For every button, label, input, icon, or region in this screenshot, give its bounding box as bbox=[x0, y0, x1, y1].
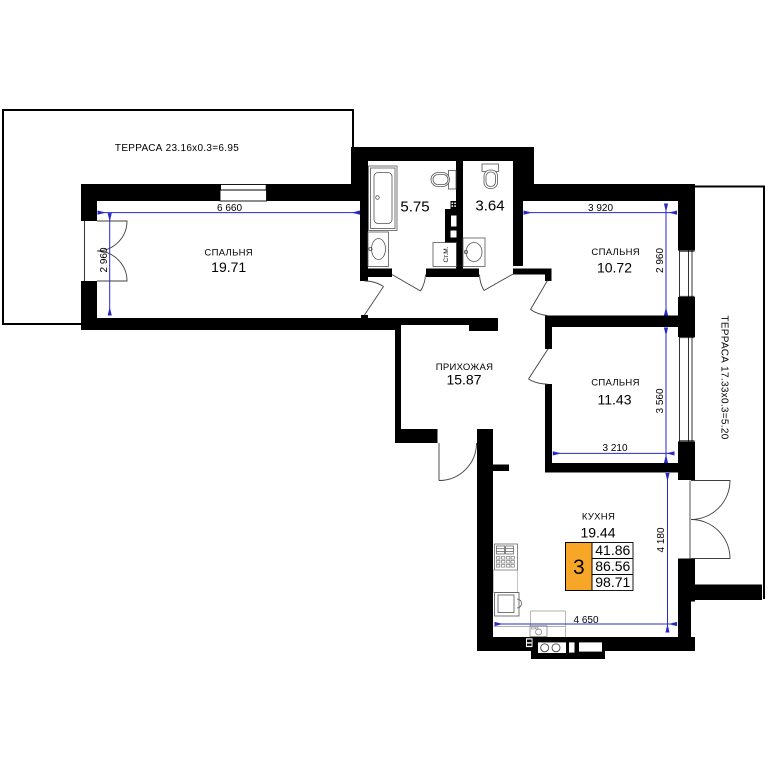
svg-text:КУХНЯ: КУХНЯ bbox=[582, 512, 615, 523]
svg-text:19.44: 19.44 bbox=[580, 525, 615, 541]
svg-text:3 560: 3 560 bbox=[655, 388, 666, 413]
svg-text:6 660: 6 660 bbox=[217, 203, 242, 214]
svg-text:3.64: 3.64 bbox=[475, 198, 504, 215]
svg-text:СПАЛЬНЯ: СПАЛЬНЯ bbox=[204, 248, 253, 259]
svg-text:СПАЛЬНЯ: СПАЛЬНЯ bbox=[591, 378, 640, 389]
svg-text:2 960: 2 960 bbox=[655, 248, 666, 273]
svg-text:Ст.М.: Ст.М. bbox=[443, 246, 450, 262]
svg-text:5.75: 5.75 bbox=[400, 199, 429, 216]
svg-text:41.86: 41.86 bbox=[595, 542, 630, 558]
svg-text:СПАЛЬНЯ: СПАЛЬНЯ bbox=[591, 247, 640, 258]
svg-text:4 180: 4 180 bbox=[656, 527, 667, 552]
svg-text:11.43: 11.43 bbox=[598, 392, 632, 408]
svg-text:ТЕРРАСА 17.33x0.3=5.20: ТЕРРАСА 17.33x0.3=5.20 bbox=[719, 315, 730, 439]
svg-text:86.56: 86.56 bbox=[595, 558, 630, 574]
svg-text:ТЕРРАСА 23.16x0.3=6.95: ТЕРРАСА 23.16x0.3=6.95 bbox=[115, 143, 239, 154]
svg-text:98.71: 98.71 bbox=[595, 574, 630, 590]
svg-text:10.72: 10.72 bbox=[597, 260, 632, 276]
svg-text:4 650: 4 650 bbox=[573, 615, 598, 626]
svg-text:3 920: 3 920 bbox=[588, 203, 613, 214]
svg-text:15.87: 15.87 bbox=[446, 372, 481, 388]
svg-text:19.71: 19.71 bbox=[211, 259, 246, 275]
svg-text:2 960: 2 960 bbox=[99, 247, 110, 272]
svg-text:3: 3 bbox=[573, 556, 585, 579]
svg-text:3 210: 3 210 bbox=[602, 443, 627, 454]
